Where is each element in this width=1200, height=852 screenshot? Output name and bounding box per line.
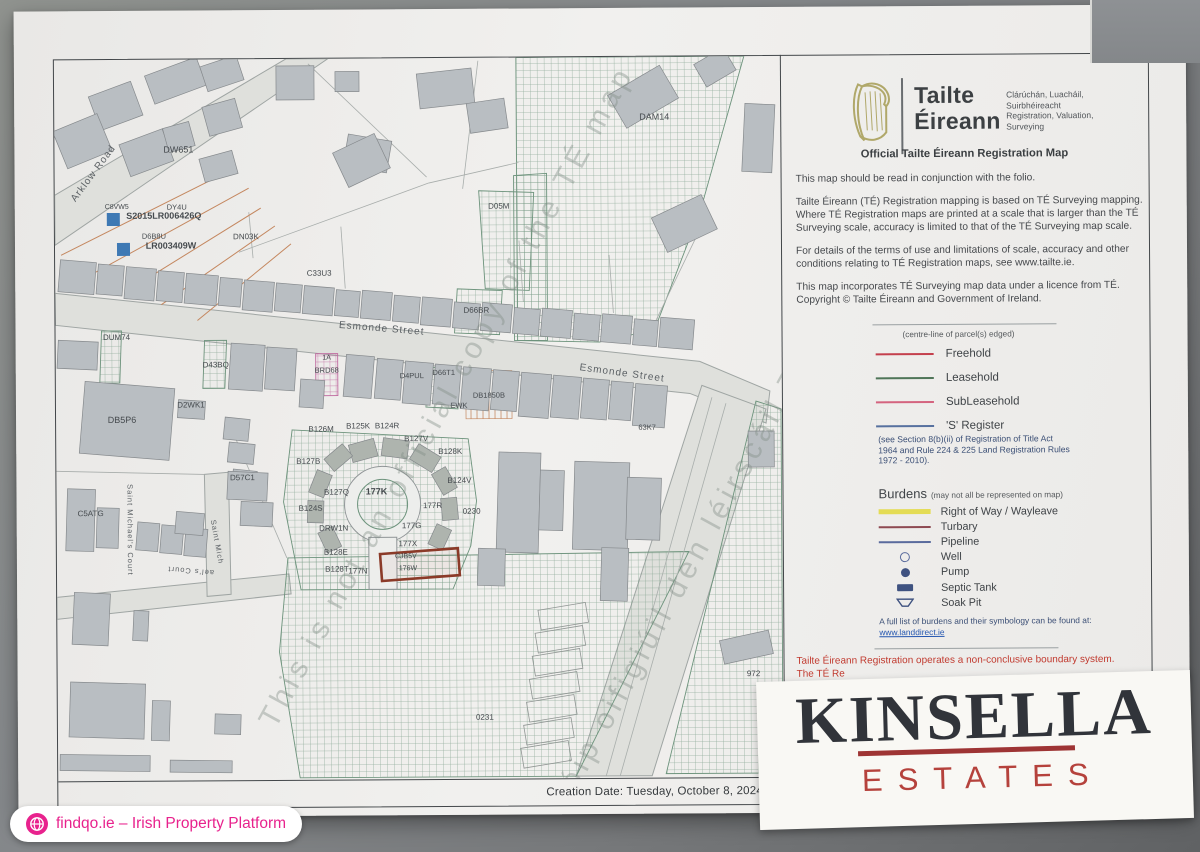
map-parcel-label: B124S: [299, 504, 323, 513]
map-building: [626, 477, 662, 540]
burden-item: Soak Pit: [879, 594, 1058, 610]
brand-name-line2: Éireann: [914, 108, 1001, 135]
map-building: [202, 98, 243, 136]
legend: FreeholdLeaseholdSubLeasehold'S' Registe…: [876, 341, 1020, 438]
panel-paragraph: This map should be read in conjunction w…: [796, 171, 1148, 186]
map-building: [299, 379, 325, 408]
map-parcel-label: B128K: [438, 447, 463, 456]
map-building: [274, 283, 302, 313]
map-parcel-label: BRD68: [315, 366, 339, 375]
map-parcel-label: B126M: [308, 425, 334, 434]
map-parcel-label: S2015LR006426Q: [126, 210, 201, 220]
map-parcel-label: 0230: [463, 507, 481, 516]
map-building: [240, 501, 273, 526]
map-registration-marker: [117, 243, 130, 256]
burden-swatch-line: [879, 541, 931, 544]
panel-paragraph: For details of the terms of use and limi…: [796, 243, 1148, 271]
map-street-label: Saint Michael's Court: [125, 484, 135, 576]
map-building: [228, 343, 265, 391]
burden-swatch-rect-fill: [879, 584, 931, 591]
map-building: [69, 682, 146, 739]
map-building: [466, 98, 508, 133]
map-registration-marker: [107, 213, 120, 226]
burden-swatch-line: [879, 526, 931, 529]
map-parcel-label: D57C1: [230, 473, 256, 482]
map-building: [512, 307, 540, 335]
creation-date-strip: Creation Date: Tuesday, October 8, 2024 …: [58, 777, 785, 809]
burden-item: Septic Tank: [879, 579, 1058, 595]
legend-item: SubLeasehold: [876, 389, 1020, 414]
map-parcel-label: D4PUL: [400, 371, 424, 380]
brand-name: Tailte Éireann: [914, 82, 1001, 135]
burden-item: Pump: [879, 564, 1058, 580]
map-building: [57, 340, 98, 370]
map-parcel-label: B124R: [375, 421, 400, 430]
map-building: [416, 68, 475, 109]
map-building: [264, 347, 297, 391]
brand-subtitle: Clárúchán, Luacháil, Suirbhéireacht Regi…: [1006, 89, 1094, 132]
map-parcel-label: 177R: [423, 501, 442, 510]
map-building: [360, 290, 392, 320]
map-parcel-label: B127Q: [324, 488, 349, 497]
map-parcel-label: DB1850B: [473, 391, 505, 400]
map-building: [477, 548, 505, 586]
harp-icon: [848, 78, 892, 146]
map-building: [60, 755, 150, 772]
map-building: [218, 277, 242, 307]
panel-paragraph: Tailte Éireann (TÉ) Registration mapping…: [796, 194, 1148, 235]
map-parcel-label: DUM74: [103, 333, 131, 342]
kinsella-estates-sticker: KINSELLA ESTATES: [756, 670, 1194, 830]
panel-heading: Official Tailte Éireann Registration Map: [788, 147, 1140, 161]
kinsella-estates-label: ESTATES: [758, 754, 1193, 802]
map-building: [608, 381, 633, 421]
legend-note-top: (centre-line of parcel(s) edged): [903, 329, 1015, 339]
map-parcel-label: B127B: [296, 457, 320, 466]
map-building: [633, 319, 659, 347]
burden-label: Pump: [941, 566, 969, 578]
map-boundary-line: [56, 470, 204, 475]
legend-label: 'S' Register: [946, 420, 1004, 432]
burdens-legend: Right of Way / WayleaveTurbaryPipelineWe…: [879, 503, 1059, 610]
map-building: [496, 452, 541, 553]
burden-item: Well: [879, 549, 1058, 565]
legend-label: Leasehold: [946, 372, 999, 384]
photo-scene: Arklow RoadEsmonde StreetEsmonde StreetS…: [0, 0, 1200, 852]
map-building: [334, 290, 360, 318]
map-building: [175, 511, 205, 535]
map-parcel-label: DAM14: [639, 112, 669, 122]
map-building: [199, 150, 238, 182]
map-building: [632, 383, 667, 427]
map-parcel-label: 63K7: [638, 423, 656, 432]
map-parcel-label: C33U3: [307, 269, 333, 278]
legend-item: Freehold: [876, 341, 1020, 366]
burden-label: Septic Tank: [941, 581, 997, 593]
map-building: [540, 308, 572, 338]
findqo-badge: findqo.ie – Irish Property Platform: [10, 806, 302, 842]
map-building: [223, 417, 250, 441]
map-building: [156, 271, 184, 303]
map-building: [151, 700, 170, 741]
map-parcel-label: 177G: [402, 521, 422, 530]
burdens-title: Burdens(may not all be represented on ma…: [878, 484, 1063, 503]
map-boundary-line: [341, 227, 345, 289]
map-building: [302, 286, 334, 316]
burden-item: Right of Way / Wayleave: [879, 503, 1058, 519]
burden-item: Pipeline: [879, 534, 1058, 550]
legend-note-bottom: (see Section 8(b)(ii) of Registration of…: [878, 433, 1074, 466]
map-parcel-label: D2WK1: [177, 400, 205, 409]
map-building: [72, 592, 110, 646]
map-building: [124, 267, 156, 301]
burden-label: Pipeline: [941, 536, 979, 548]
legend-label: SubLeasehold: [946, 395, 1020, 407]
map-building: [184, 273, 218, 305]
legend-swatch: [876, 401, 934, 403]
map-building: [742, 103, 775, 172]
map-boundary-line: [428, 163, 518, 184]
legend-item: Leasehold: [876, 365, 1020, 390]
map-building: [200, 56, 244, 92]
creation-date: Creation Date: Tuesday, October 8, 2024 …: [546, 785, 783, 798]
findqo-text: findqo.ie – Irish Property Platform: [56, 815, 286, 833]
burden-label: Soak Pit: [941, 596, 981, 608]
background-corner: [1090, 0, 1200, 63]
map-building: [420, 297, 452, 327]
map-building: [600, 314, 632, 344]
map-parcel-label: C5ATG: [78, 509, 104, 518]
map-parcel-label: B124V: [447, 476, 472, 485]
burden-swatch-circle-outline: [879, 552, 931, 562]
map-parcel-label: D6B8U: [142, 232, 166, 241]
map-building: [550, 375, 581, 419]
map-building: [335, 71, 359, 91]
map-parcel-label: CJB5V: [395, 553, 417, 560]
map-boundary-line: [239, 183, 429, 252]
map-area: Arklow RoadEsmonde StreetEsmonde StreetS…: [54, 56, 784, 781]
map-building: [227, 442, 255, 464]
map-building: [343, 354, 374, 398]
map-parcel-label: 1A: [322, 355, 331, 362]
map-building: [96, 264, 124, 296]
legend-swatch: [876, 377, 934, 379]
burden-label: Right of Way / Wayleave: [941, 505, 1058, 518]
globe-icon: [26, 813, 48, 835]
map-building: [136, 522, 160, 552]
map-building: [572, 461, 630, 551]
burden-swatch-circle-fill: [879, 568, 931, 577]
map-parcel-label: 0231: [476, 713, 494, 722]
map-building: [518, 372, 551, 418]
map-parcel-label: D43BQ: [203, 360, 229, 369]
map-building: [658, 317, 694, 350]
map-building: [572, 313, 600, 341]
map-parcel-label: DB5P6: [108, 415, 137, 425]
map-parcel-label: B125K: [346, 421, 371, 430]
map-highlighted-parcel: [380, 548, 460, 581]
burden-label: Well: [941, 551, 962, 563]
map-parcel-label: DW651: [163, 144, 193, 154]
map-parcel-label: DN03K: [233, 232, 260, 241]
map-building: [392, 295, 420, 323]
map-building: [144, 57, 206, 104]
map-building: [133, 610, 149, 641]
burden-item: Turbary: [879, 518, 1058, 534]
map-building: [539, 470, 565, 531]
burden-label: Turbary: [941, 520, 978, 532]
map-parcel-label: DRW1N: [319, 524, 348, 533]
map-building: [58, 260, 96, 295]
panel-paragraphs: This map should be read in conjunction w…: [796, 171, 1149, 318]
map-building: [66, 489, 96, 552]
burden-swatch-trapezoid: [879, 598, 931, 607]
legend-label: Freehold: [946, 348, 991, 360]
panel-paragraph: This map incorporates TÉ Surveying map d…: [796, 279, 1148, 307]
cadastral-map: Arklow RoadEsmonde StreetEsmonde StreetS…: [54, 56, 784, 781]
map-parcel-label: DY4U: [167, 203, 187, 212]
burdens-footer: A full list of burdens and their symbolo…: [879, 615, 1093, 638]
brand-name-line1: Tailte: [914, 82, 1001, 109]
map-parcel-label: LR003409W: [146, 240, 197, 250]
map-building: [441, 497, 459, 520]
kinsella-wordmark: KINSELLA: [756, 678, 1192, 756]
legend-swatch: [876, 425, 934, 427]
map-parcel-label: 177X: [398, 539, 417, 548]
map-parcel-label: D05M: [488, 202, 510, 211]
map-parcel-label: 972: [747, 669, 761, 678]
map-parcel-label: 176W: [399, 565, 418, 572]
map-building: [215, 714, 242, 735]
map-building: [580, 378, 609, 420]
burden-swatch-bar: [879, 509, 931, 515]
landdirect-link: www.landdirect.ie: [879, 627, 944, 637]
map-building: [276, 66, 314, 100]
map-building: [170, 760, 232, 773]
map-building: [600, 548, 629, 602]
map-building: [242, 280, 274, 312]
legend-swatch: [876, 353, 934, 355]
